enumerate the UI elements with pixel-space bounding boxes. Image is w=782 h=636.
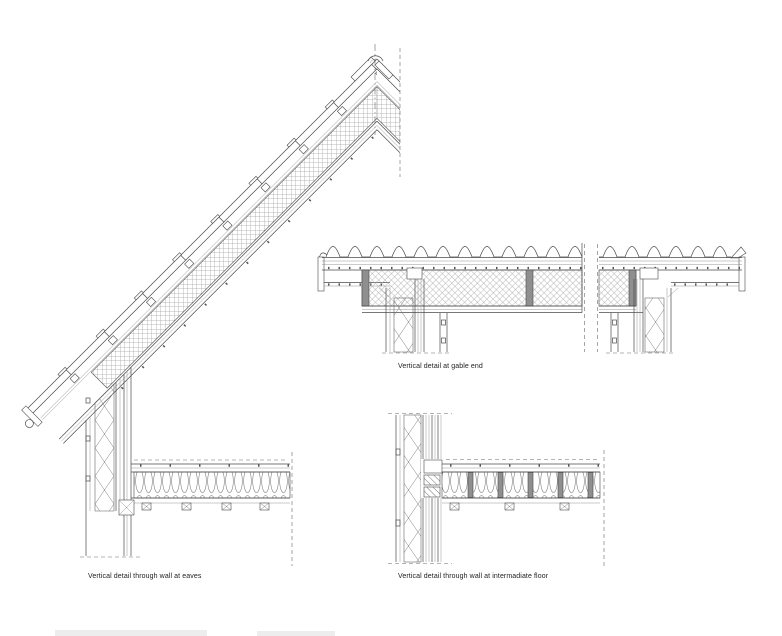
- cladding-clip: [86, 436, 90, 441]
- wall-plate: [640, 268, 658, 279]
- cladding-clip: [396, 520, 400, 526]
- verge-cap: [731, 247, 746, 258]
- roof-slope: [16, 21, 451, 456]
- leader-line: [668, 288, 678, 297]
- eaves-fascia: [22, 406, 43, 427]
- floor-joist: [588, 473, 593, 498]
- floor-insulation: [442, 472, 600, 498]
- rim-block: [424, 487, 440, 497]
- wall-plate: [407, 268, 422, 279]
- cladding-clip: [396, 449, 400, 455]
- wall-insulation: [645, 298, 664, 352]
- caption-eaves: Vertical detail through wall at eaves: [88, 573, 201, 580]
- intermediate-floor-section: [442, 450, 604, 566]
- eaves-floor-section: [119, 452, 292, 566]
- barge-board: [318, 257, 324, 291]
- wall-insulation: [394, 298, 413, 352]
- barge-board: [739, 257, 745, 291]
- floor-joist: [498, 473, 503, 498]
- cladding-clip: [86, 476, 90, 481]
- cladding-clip: [86, 398, 90, 403]
- floor-insulation: [134, 472, 290, 498]
- wall-insulation: [95, 384, 114, 511]
- caption-intermediate-floor: Vertical detail through wall at intermad…: [398, 573, 548, 580]
- rim-plate: [424, 460, 442, 473]
- wall-insulation: [404, 415, 421, 562]
- eaves-wall-section: [80, 367, 140, 557]
- gable-left-piece: [318, 243, 585, 353]
- floor-wall-section: [396, 415, 444, 562]
- floor-joist: [528, 473, 533, 498]
- roof-insulation: [91, 36, 443, 388]
- intermediate-floor-detail-drawing: [388, 414, 604, 567]
- rafter: [362, 270, 369, 306]
- roof-tile-profile: [599, 247, 731, 258]
- gable-right-piece: [598, 244, 747, 353]
- construction-details-drawing: [0, 0, 782, 636]
- roof-tile-profile: [326, 247, 582, 258]
- cropped-drawing-fragment: [257, 631, 335, 636]
- rafter: [629, 270, 636, 306]
- floor-joist: [468, 473, 473, 498]
- caption-gable-end: Vertical detail at gable end: [398, 363, 483, 370]
- rafter: [526, 270, 533, 306]
- rim-block: [424, 475, 440, 485]
- floor-joist: [558, 473, 563, 498]
- architectural-detail-sheet: Vertical detail through wall at eaves Ve…: [0, 0, 782, 636]
- gable-end-detail-drawing: [318, 243, 746, 353]
- cropped-drawing-fragment: [55, 630, 207, 636]
